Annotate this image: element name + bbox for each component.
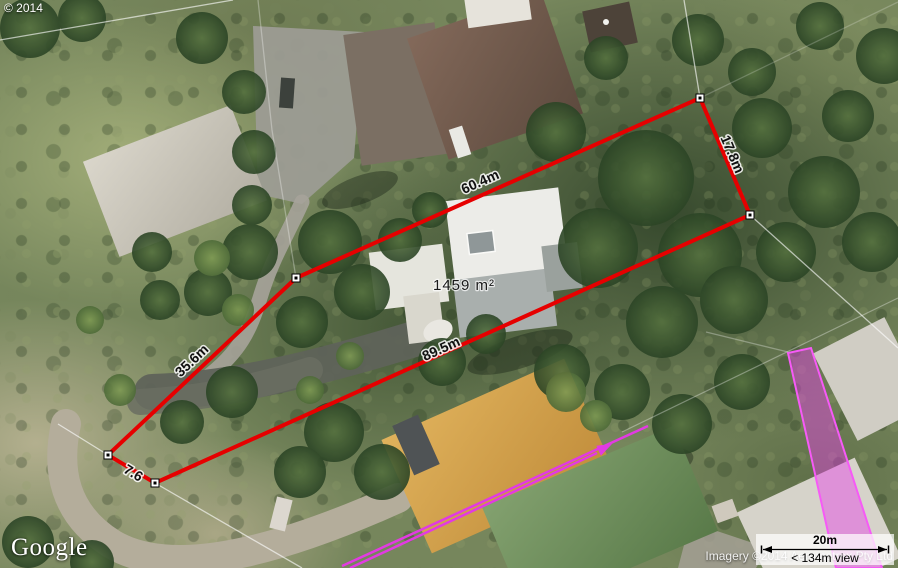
vertex-marker-west[interactable]	[292, 274, 300, 282]
vertex-marker-south[interactable]	[151, 479, 159, 487]
vertex-marker-southwest[interactable]	[104, 451, 112, 459]
scale-view-label: < 134m view	[756, 553, 894, 564]
dimension-label-north: 60.4m	[459, 166, 502, 197]
aerial-map-view[interactable]: 60.4m 17.8m 89.5m 35.6m 7.6 1459 m² © 20…	[0, 0, 898, 568]
map-overlay: 60.4m 17.8m 89.5m 35.6m 7.6 1459 m²	[0, 0, 898, 568]
google-logo[interactable]: Google	[11, 534, 88, 562]
vertex-marker-north[interactable]	[696, 94, 704, 102]
vertex-marker-east[interactable]	[746, 211, 754, 219]
scale-bar: 20m < 134m view	[756, 534, 894, 565]
skylight	[467, 230, 495, 254]
top-copyright: © 2014	[4, 1, 43, 15]
parcel-area-label: 1459 m²	[433, 277, 495, 294]
dark-car	[279, 78, 295, 109]
small-shed	[712, 499, 739, 523]
